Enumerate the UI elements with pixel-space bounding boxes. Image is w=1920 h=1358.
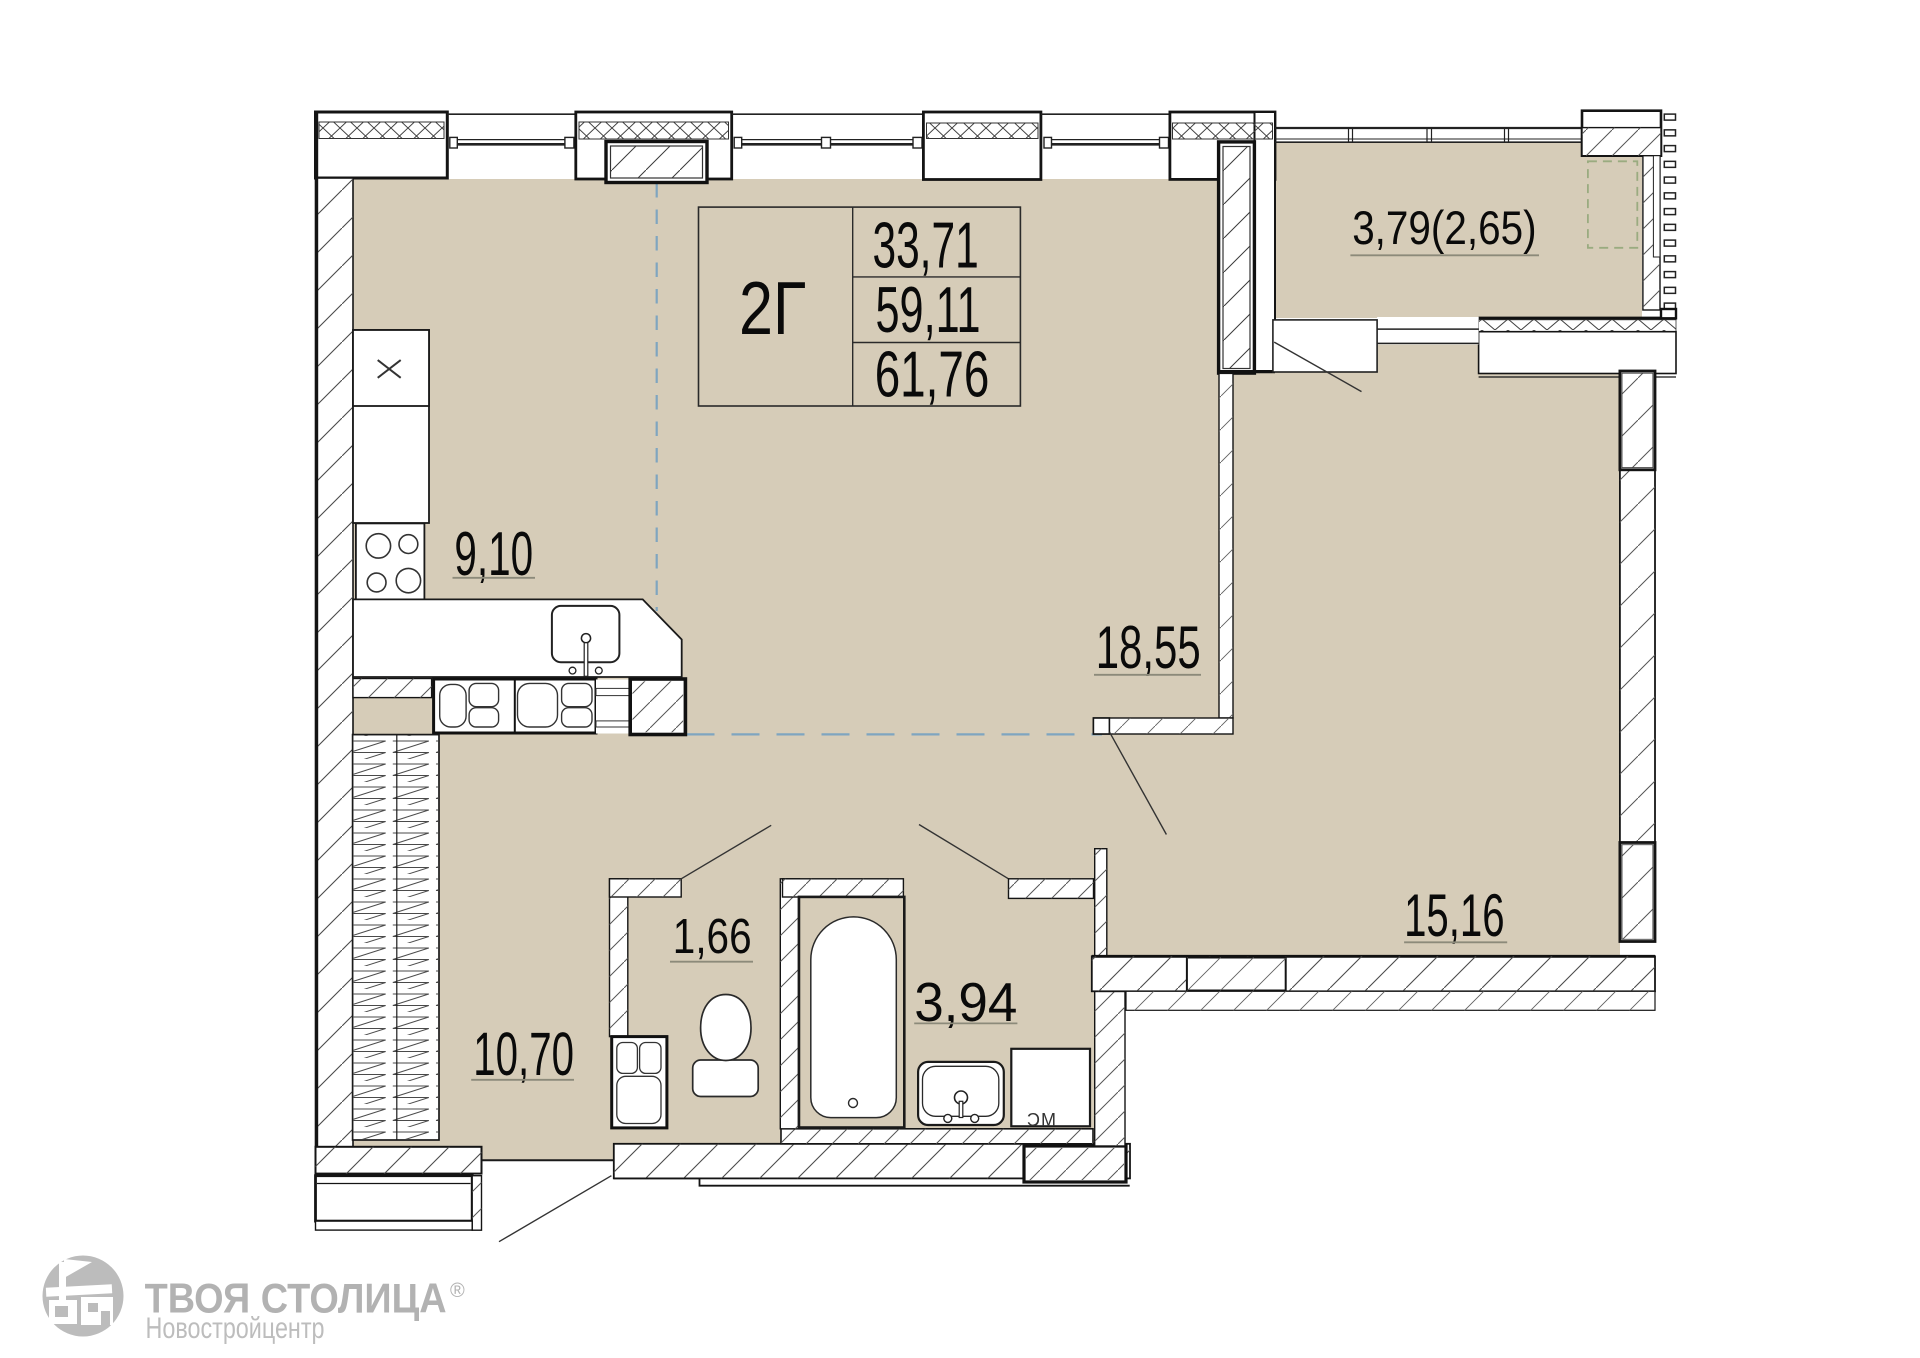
svg-text:59,11: 59,11	[876, 273, 981, 346]
svg-text:33,71: 33,71	[872, 209, 978, 282]
svg-text:МС: МС	[1026, 1110, 1056, 1130]
svg-text:18,55: 18,55	[1096, 614, 1201, 681]
svg-text:Новостройцентр: Новостройцентр	[146, 1312, 325, 1345]
svg-text:15,16: 15,16	[1404, 882, 1505, 949]
svg-text:2Г: 2Г	[739, 266, 806, 350]
svg-text:61,76: 61,76	[875, 338, 990, 411]
svg-text:®: ®	[450, 1280, 465, 1302]
svg-text:10,70: 10,70	[473, 1020, 574, 1088]
svg-text:3,79(2,65): 3,79(2,65)	[1352, 202, 1536, 255]
svg-text:1,66: 1,66	[673, 910, 752, 964]
